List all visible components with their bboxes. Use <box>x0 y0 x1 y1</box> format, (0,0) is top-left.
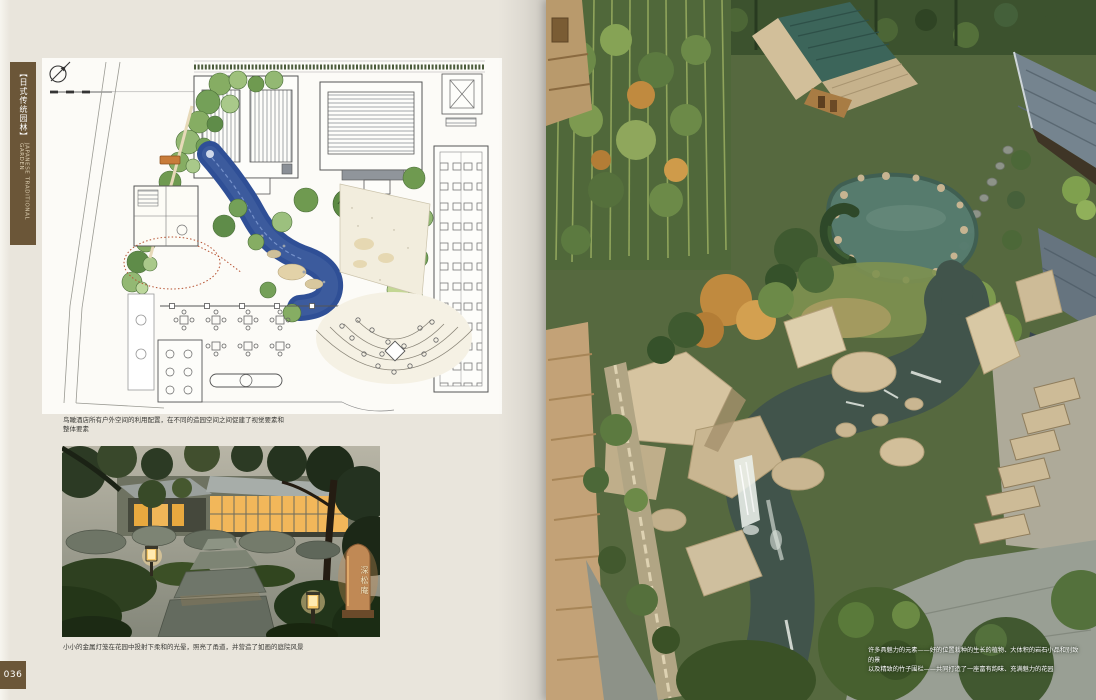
fan-patio <box>316 292 472 384</box>
courtyard-teahouse <box>124 186 242 289</box>
aerial-caption-line2: 以及精致的竹子围栏——共同打造了一座富有韵味、充满魅力的花园 <box>868 665 1084 675</box>
chapter-title-english: JAPANESE TRADITIONAL GARDEN <box>18 143 29 245</box>
garden-plan-drawing <box>42 58 502 414</box>
scale-bar <box>50 91 214 94</box>
reception-counter <box>210 374 282 387</box>
orange-bench <box>160 156 180 164</box>
night-garden-photo: 深松庵 <box>62 446 380 637</box>
page-edge <box>0 0 10 700</box>
night-photo-caption: 小小的金属灯笼在花园中投射下柔和的光晕，照亮了甬道，并营造了如画的庭院风景 <box>63 643 403 652</box>
book-spread: 【日式传统园林】 JAPANESE TRADITIONAL GARDEN 036 <box>0 0 1096 700</box>
street-hedge <box>194 61 485 72</box>
aerial-garden-illustration <box>546 0 1096 700</box>
page-gutter <box>498 0 546 700</box>
page-number: 036 <box>0 661 26 689</box>
garden-plan-figure <box>42 58 502 414</box>
aerial-garden-photo: 许多具魅力的元素——好的位置栽种的生长的植物、大体积的岩石小品和别致的景 以及精… <box>546 0 1096 700</box>
chapter-tab: 【日式传统园林】 JAPANESE TRADITIONAL GARDEN <box>10 62 36 245</box>
utility-block <box>442 74 482 126</box>
night-garden-illustration <box>62 446 380 637</box>
plan-caption-line2: 整体要素 <box>63 425 383 434</box>
chapter-title-chinese: 【日式传统园林】 <box>19 69 27 137</box>
west-walkway <box>128 294 154 390</box>
aerial-caption-line1: 许多具魅力的元素——好的位置栽种的生长的植物、大体积的岩石小品和别致的景 <box>868 646 1084 665</box>
plan-caption-line1: 鸟瞰酒店所有户外空间的利用配置，在不同的造园空间之间促建了视觉要素和 <box>63 416 383 425</box>
plan-caption: 鸟瞰酒店所有户外空间的利用配置，在不同的造园空间之间促建了视觉要素和 整体要素 <box>63 416 383 435</box>
aerial-photo-caption: 许多具魅力的元素——好的位置栽种的生长的植物、大体积的岩石小品和别致的景 以及精… <box>868 646 1084 675</box>
private-dining-room <box>158 340 202 402</box>
gravel-terrace <box>340 184 430 296</box>
compass-icon <box>50 62 70 82</box>
stele-inscription: 深松庵 <box>346 552 370 610</box>
